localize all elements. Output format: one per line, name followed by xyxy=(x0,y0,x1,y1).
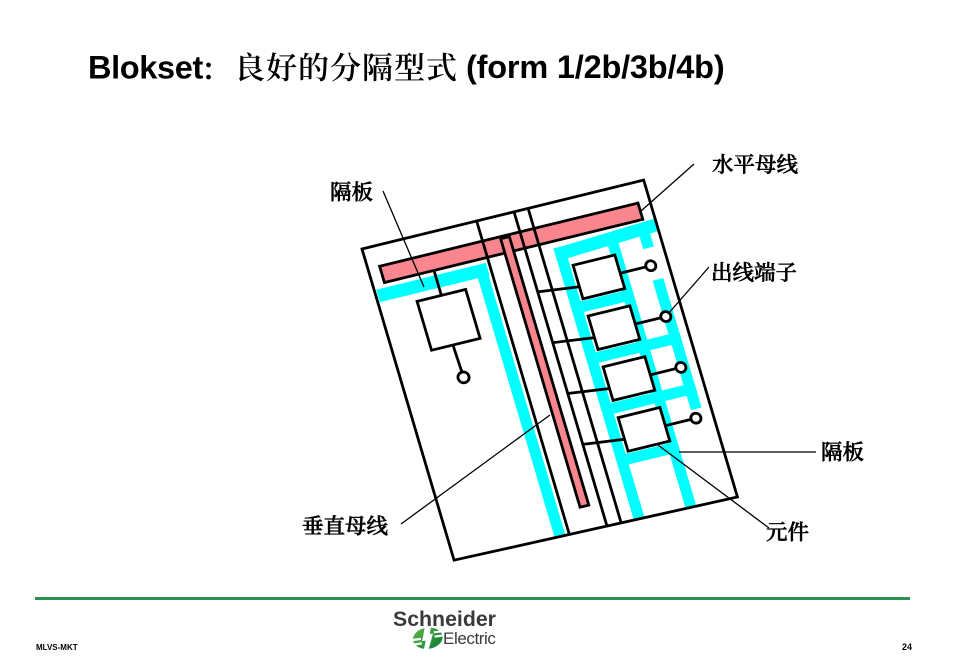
svg-text:Electric: Electric xyxy=(443,629,496,648)
svg-text:MLVS-MKT: MLVS-MKT xyxy=(36,643,78,652)
svg-text:24: 24 xyxy=(902,642,912,652)
svg-text:Blokset: Blokset xyxy=(88,50,203,86)
svg-text:Schneider: Schneider xyxy=(393,607,496,631)
svg-text:(form 1/2b/3b/4b): (form 1/2b/3b/4b) xyxy=(466,49,724,85)
